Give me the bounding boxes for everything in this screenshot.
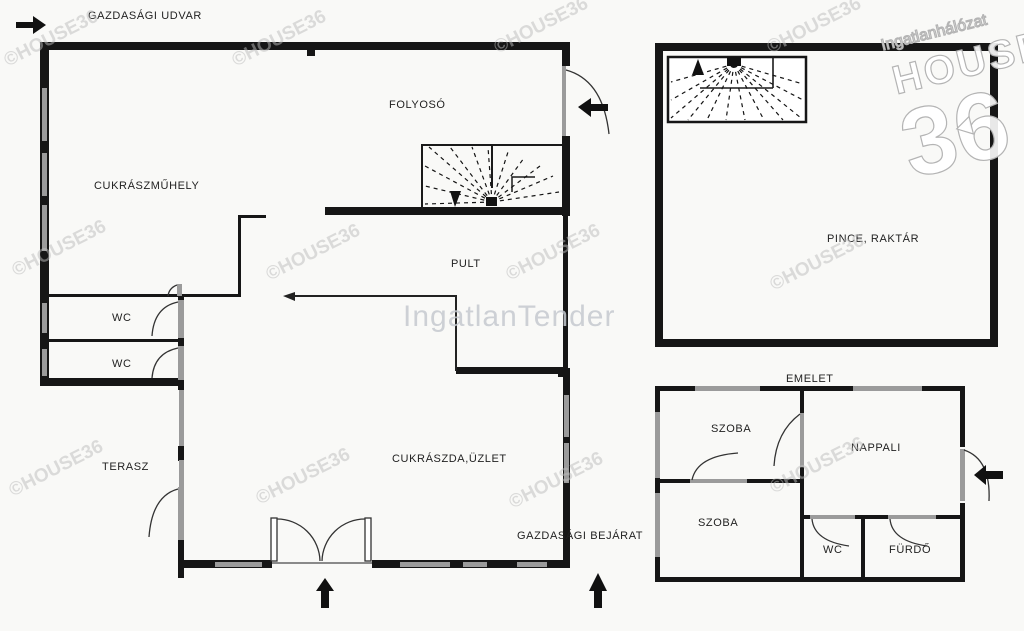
shop-entrance-arrow-icon	[316, 578, 334, 608]
ground-floor-stairs	[422, 145, 562, 210]
service-entrance-label: GAZDASÁGI BEJÁRAT	[517, 530, 643, 542]
room-label-pince: PINCE, RAKTÁR	[827, 233, 919, 245]
room-label-furdo: FÜRDŐ	[889, 544, 931, 556]
yard-entrance-arrow-icon	[16, 16, 46, 34]
floor-plan-image: Ingatlanhálózat HOUSE 36 GAZDASÁGI UDVAR…	[0, 0, 1024, 631]
room-label-wc2: WC	[112, 358, 132, 370]
room-label-szoba2: SZOBA	[698, 517, 738, 529]
ingatlantender-watermark: IngatlanTender	[403, 300, 616, 334]
room-label-cukraszmuhely: CUKRÁSZMŰHELY	[94, 180, 199, 192]
house36-logo: Ingatlanhálózat HOUSE 36	[876, 0, 1024, 199]
basement-stairs	[668, 57, 806, 122]
room-label-nappali: NAPPALI	[851, 442, 901, 454]
yard-label: GAZDASÁGI UDVAR	[88, 10, 202, 22]
room-label-cukraszda: CUKRÁSZDA,ÜZLET	[392, 453, 507, 465]
room-label-wc1: WC	[112, 312, 132, 324]
room-label-szoba1: SZOBA	[711, 423, 751, 435]
service-entrance-arrow-icon	[589, 573, 607, 608]
stairs-down-arrow-icon	[450, 191, 461, 207]
room-label-wc-upper: WC	[823, 544, 843, 556]
double-door-leaves	[271, 518, 371, 561]
room-label-terasz: TERASZ	[102, 461, 149, 473]
room-label-pult: PULT	[451, 258, 481, 270]
upper-floor-title: EMELET	[786, 373, 834, 385]
upper-floor-windows	[655, 386, 965, 557]
corridor-entrance-arrow-icon	[578, 98, 608, 117]
room-label-folyoso: FOLYOSÓ	[389, 99, 446, 111]
